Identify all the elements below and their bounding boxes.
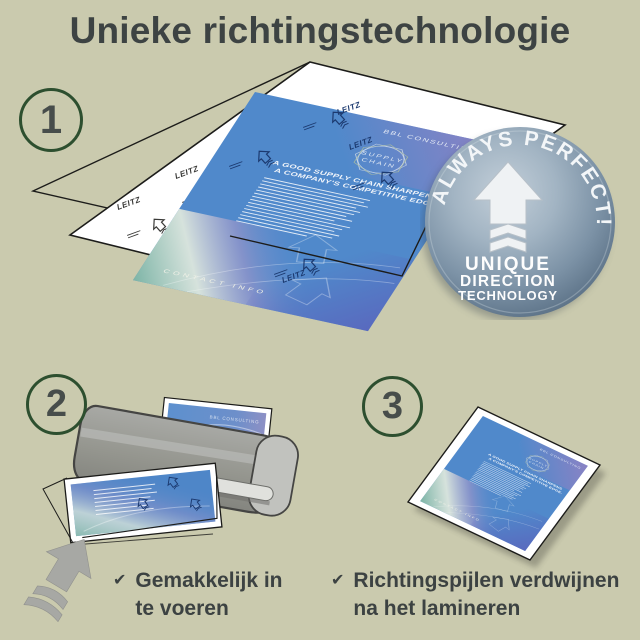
step-1-number-badge: 1	[19, 88, 83, 152]
step-number: 3	[382, 385, 403, 428]
caption-line: Richtingspijlen verdwijnen	[353, 569, 619, 592]
caption-line: Gemakkelijk in	[135, 569, 282, 592]
badge-line3: TECHNOLOGY	[458, 288, 558, 303]
step-number: 2	[46, 383, 67, 426]
page-title: Unieke richtingstechnologie	[0, 10, 640, 52]
product-infographic: Unieke richtingstechnologie	[0, 0, 640, 640]
checkmark-icon: ✔	[331, 567, 344, 622]
badge-line1: UNIQUE	[465, 254, 551, 275]
always-perfect-badge: ALWAYS PERFECT! UNIQUE DIRECTION TECHNOL…	[420, 120, 620, 320]
step-2-number-badge: 2	[26, 374, 87, 435]
caption-line: na het lamineren	[353, 597, 520, 620]
step-number: 1	[40, 98, 62, 143]
caption-arrows-disappear: ✔ Richtingspijlen verdwijnen na het lami…	[331, 567, 619, 622]
checkmark-icon: ✔	[113, 567, 126, 622]
caption-line: te voeren	[135, 597, 228, 620]
caption-easy-feed: ✔ Gemakkelijk in te voeren	[113, 567, 283, 622]
step-3-number-badge: 3	[362, 376, 423, 437]
